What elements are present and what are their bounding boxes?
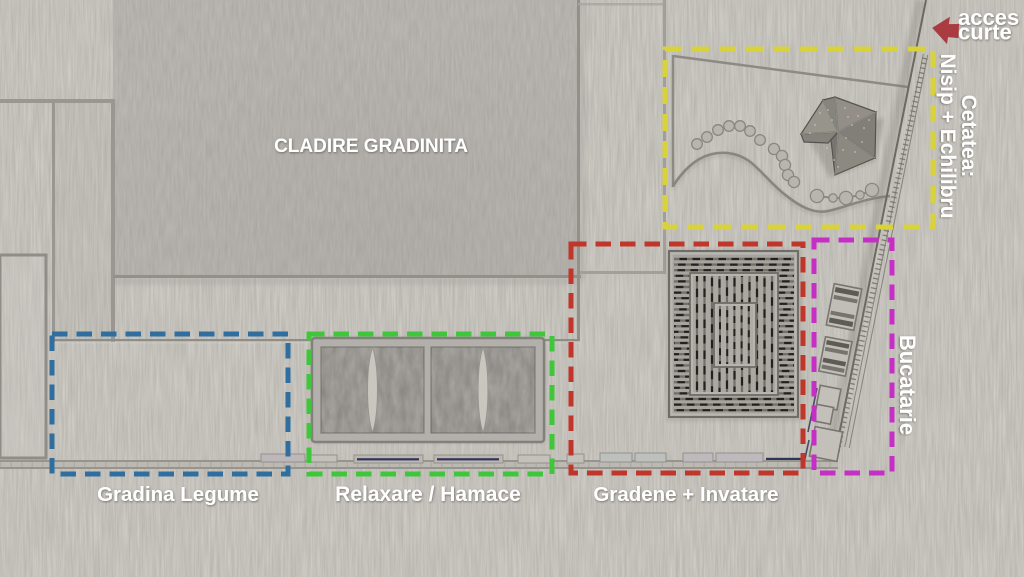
svg-text:Nisip + Echilibru: Nisip + Echilibru <box>936 53 959 218</box>
svg-text:CLADIRE GRADINITA: CLADIRE GRADINITA <box>274 136 468 157</box>
svg-text:Gradina Legume: Gradina Legume <box>97 483 259 506</box>
svg-text:Relaxare / Hamace: Relaxare / Hamace <box>335 483 521 506</box>
svg-text:Bucatarie: Bucatarie <box>895 335 920 435</box>
svg-text:Cetatea:: Cetatea: <box>957 95 980 178</box>
svg-text:curte: curte <box>958 20 1012 45</box>
svg-text:Gradene + Invatare: Gradene + Invatare <box>593 483 778 506</box>
